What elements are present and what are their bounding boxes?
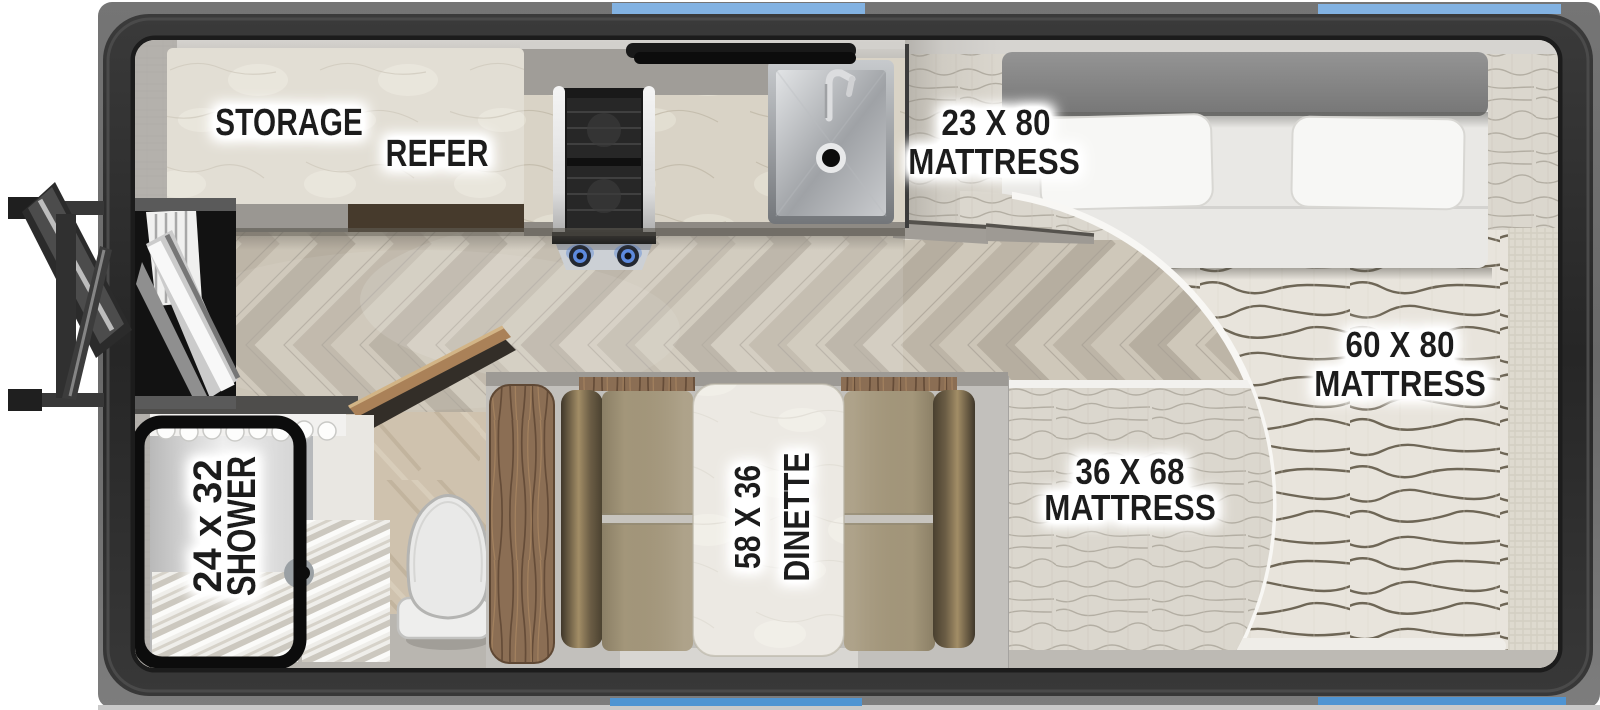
svg-text:36 X 68: 36 X 68 [1075,452,1184,492]
svg-text:MATTRESS: MATTRESS [1044,488,1216,528]
svg-text:23 X 80: 23 X 80 [941,103,1050,143]
svg-text:MATTRESS: MATTRESS [1314,364,1486,404]
svg-text:STORAGE: STORAGE [215,102,363,144]
svg-text:DINETTE: DINETTE [778,452,818,581]
svg-text:58 X 36: 58 X 36 [729,465,769,569]
svg-text:REFER: REFER [385,133,488,175]
svg-text:MATTRESS: MATTRESS [908,142,1080,182]
svg-text:60 X 80: 60 X 80 [1345,325,1454,365]
svg-text:SHOWER: SHOWER [219,456,264,596]
